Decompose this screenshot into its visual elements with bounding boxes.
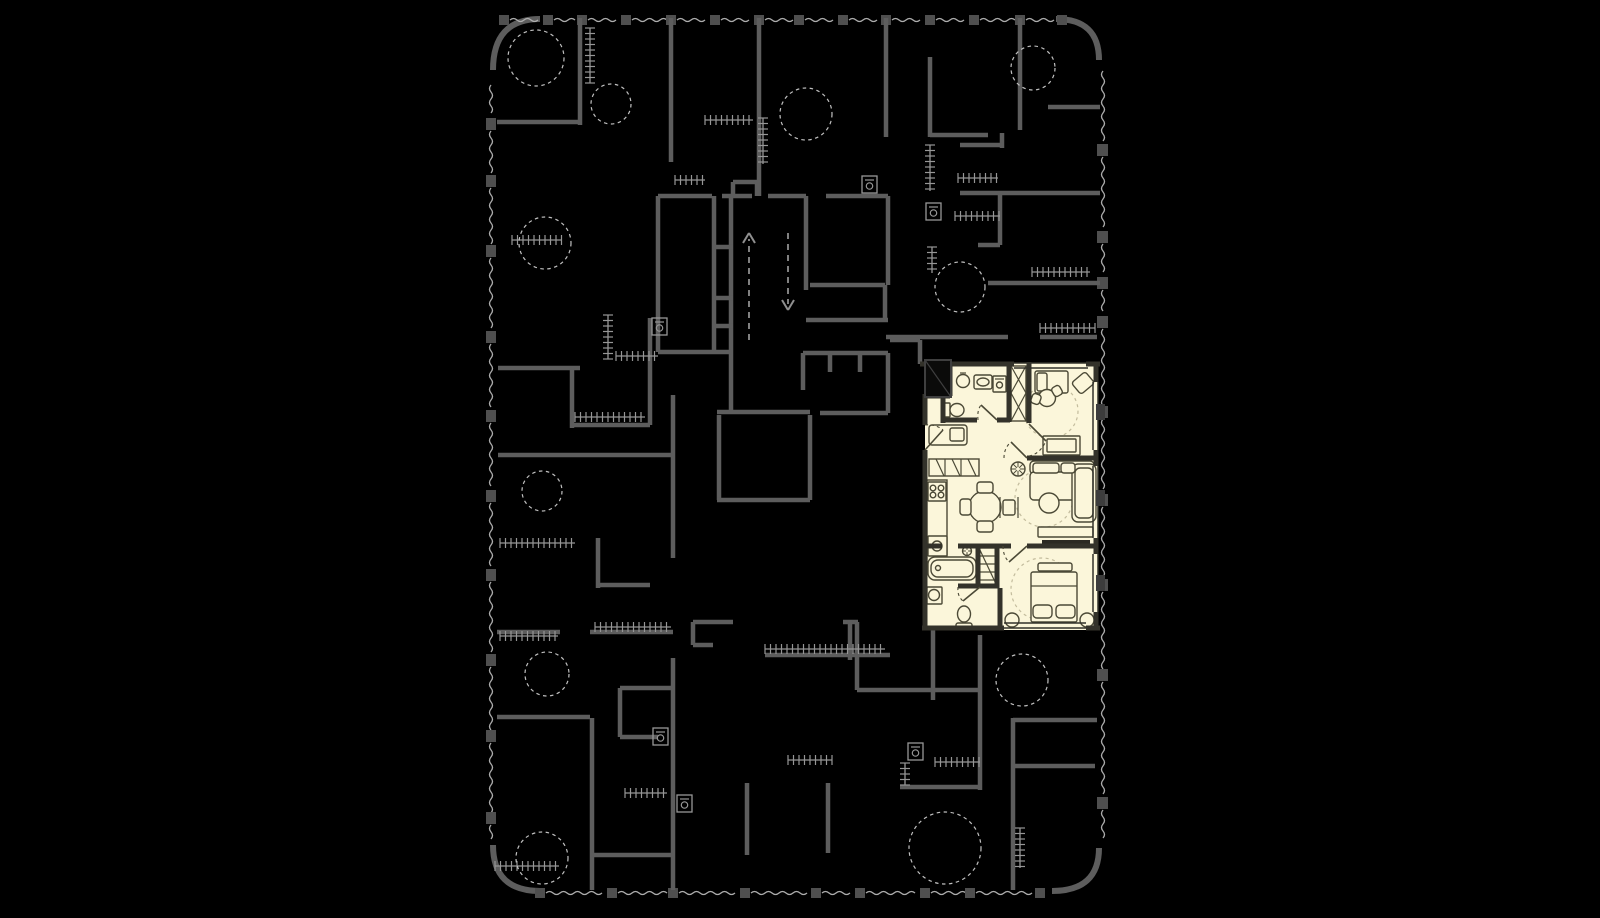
facade-window-left — [490, 503, 493, 566]
chair — [977, 482, 993, 493]
facade-window-bottom — [822, 892, 850, 895]
tv-console — [1038, 527, 1093, 537]
bed-bench — [1038, 563, 1072, 571]
radiator-symbol — [1032, 267, 1090, 277]
facade-window-left — [490, 825, 493, 839]
toilet-bowl — [950, 404, 964, 417]
facade-window-right — [1102, 71, 1105, 141]
radiator-symbol — [955, 211, 1000, 221]
facade-pilaster — [621, 15, 631, 25]
pillow — [1056, 605, 1075, 618]
radiator-symbol — [925, 145, 935, 191]
door-swing-arc — [996, 654, 1048, 706]
washing-machine-drum — [997, 382, 1003, 388]
selected-unit[interactable] — [920, 360, 1105, 630]
facade-window-top — [677, 19, 705, 22]
facade-pilaster — [499, 15, 509, 25]
facade-window-left — [490, 258, 493, 328]
facade-pilaster — [1097, 231, 1108, 243]
radiator-symbol — [1040, 323, 1095, 333]
pouf — [1039, 493, 1059, 513]
facade-window-top — [936, 19, 964, 22]
radiator-symbol — [765, 644, 885, 654]
arrow-head — [788, 300, 794, 310]
vanity-basin — [977, 378, 989, 386]
radiator-symbol — [1015, 828, 1025, 868]
wm-drum — [866, 183, 872, 189]
facade-pilaster — [838, 15, 848, 25]
nightstand — [1005, 613, 1019, 627]
chair — [977, 521, 993, 532]
wm-body — [862, 176, 877, 193]
facade-window-top — [765, 19, 793, 22]
facade-window-bottom — [931, 892, 966, 895]
burner — [938, 485, 944, 491]
facade-window-right — [1102, 244, 1105, 272]
facade-pilaster — [486, 569, 496, 581]
dresser-top — [1047, 439, 1076, 452]
facade-window-left — [490, 743, 493, 813]
door-swing-arc — [522, 471, 562, 511]
facade-window-right — [1102, 592, 1105, 669]
arrow-head — [749, 233, 755, 243]
facade-window-left — [490, 667, 493, 730]
radiator-symbol — [927, 247, 937, 273]
wm-drum — [681, 802, 687, 808]
wm-drum — [912, 750, 918, 756]
radiator-symbol — [958, 173, 998, 183]
facade-pilaster — [486, 654, 496, 666]
facade-pilaster — [740, 888, 750, 898]
hall-bench-seat — [950, 428, 964, 441]
facade-window-bottom — [751, 892, 807, 895]
facade-pilaster — [710, 15, 720, 25]
radiator-symbol — [705, 115, 753, 125]
facade-pilaster — [535, 888, 545, 898]
wm-body — [677, 795, 692, 812]
facade-window-left — [490, 423, 493, 486]
facade-pilaster — [486, 118, 496, 130]
drain — [936, 566, 941, 571]
door-swing-arc — [935, 262, 985, 312]
facade-window-bottom — [618, 892, 667, 895]
facade-pilaster — [965, 888, 975, 898]
pillow — [1037, 373, 1047, 391]
facade-window-right — [1102, 507, 1105, 577]
radiator-symbol — [675, 175, 705, 185]
radiator-symbol — [495, 861, 559, 871]
facade-pilaster — [794, 15, 804, 25]
facade-pilaster — [607, 888, 617, 898]
facade-window-top — [632, 19, 667, 22]
facade-pilaster — [811, 888, 821, 898]
facade-window-top — [554, 19, 575, 22]
washing-machine-icon — [862, 176, 877, 193]
door-swing-arc — [1011, 46, 1055, 90]
facade-pilaster — [1057, 15, 1067, 25]
washbasin — [957, 375, 970, 388]
facade-pilaster — [855, 888, 865, 898]
stairwell-arrows — [743, 233, 794, 340]
facade-pilaster — [486, 245, 496, 257]
washing-machine-icon — [677, 795, 692, 812]
radiator-symbol — [603, 315, 613, 359]
sofa-cushion — [1061, 463, 1075, 473]
tall-wardrobe — [1011, 366, 1026, 421]
facade-window-right — [1102, 682, 1105, 794]
nightstand — [1080, 613, 1094, 627]
facade-window-top — [805, 19, 833, 22]
facade-pilaster — [486, 490, 496, 502]
facade-window-right — [1102, 329, 1105, 406]
armchair — [1003, 500, 1015, 515]
facade-pilaster — [969, 15, 979, 25]
facade-window-bottom — [976, 892, 1032, 895]
door-swing-arc — [516, 832, 568, 884]
facade-corner — [1052, 848, 1099, 891]
facade-corner — [493, 19, 540, 70]
toilet2-bowl — [958, 606, 971, 622]
facade-pilaster — [486, 331, 496, 343]
radiator-symbol — [625, 788, 667, 798]
facade-pilaster — [486, 730, 496, 742]
facade-pilaster — [920, 888, 930, 898]
facade-window-top — [721, 19, 749, 22]
washing-machine-icon — [926, 203, 941, 220]
door-swing-arc — [909, 812, 981, 884]
facade-pilaster — [925, 15, 935, 25]
door-swing-arc — [525, 652, 569, 696]
wm-body — [926, 203, 941, 220]
wm-body — [908, 743, 923, 760]
facade-window-left — [490, 85, 493, 113]
facade-pilaster — [1097, 797, 1108, 809]
facade-window-left — [490, 344, 493, 407]
facade-window-left — [490, 131, 493, 173]
facade-pilaster — [1035, 888, 1045, 898]
floorplan-canvas — [0, 0, 1600, 918]
unit-facade-pilaster — [1096, 575, 1105, 591]
facade-pilaster — [543, 15, 553, 25]
facade-pilaster — [1097, 316, 1108, 328]
chaise-cushion — [1075, 468, 1093, 518]
facade-window-top — [1026, 19, 1054, 22]
door-swing-arc — [508, 30, 564, 86]
arrow-head — [743, 233, 749, 243]
radiator-symbol — [500, 538, 575, 548]
facade-window-left — [490, 582, 493, 652]
radiator-symbol — [585, 28, 595, 83]
facade-pilaster — [1097, 669, 1108, 681]
unit-facade-pilaster — [1096, 404, 1105, 420]
facade-pilaster — [486, 812, 496, 824]
facade-pilaster — [486, 410, 496, 422]
facade-window-right — [1102, 419, 1105, 489]
wm-drum — [657, 735, 663, 741]
sofa-cushion — [1033, 463, 1059, 473]
radiator-symbol — [900, 763, 910, 785]
facade-window-bottom — [679, 892, 735, 895]
facade-corner — [1056, 19, 1099, 60]
radiator-symbol — [788, 755, 832, 765]
facade-window-bottom — [866, 892, 915, 895]
washing-machine-icon — [908, 743, 923, 760]
unit-facade-pilaster — [1096, 490, 1105, 506]
door-swing-arc — [780, 88, 832, 140]
radiator-symbol — [935, 757, 980, 767]
door-swing-arc — [591, 84, 631, 124]
facade-window-right — [1102, 157, 1105, 227]
facade-window-top — [849, 19, 877, 22]
washbasin2 — [929, 590, 940, 601]
pillow — [1033, 605, 1052, 618]
facade-window-left — [490, 188, 493, 244]
floorplan-viewport — [0, 0, 1600, 918]
burner — [930, 492, 936, 498]
facade-window-top — [980, 19, 1015, 22]
facade-window-top — [588, 19, 616, 22]
burner — [930, 485, 936, 491]
stove — [928, 482, 946, 501]
facade-pilaster — [1097, 144, 1108, 156]
facade-window-top — [892, 19, 920, 22]
chair — [960, 499, 971, 515]
wm-drum — [930, 210, 936, 216]
facade-pilaster — [486, 175, 496, 187]
radiator-symbol — [575, 412, 645, 422]
facade-window-bottom — [546, 892, 602, 895]
burner — [938, 492, 944, 498]
dining-table — [969, 491, 1001, 523]
facade-window-right — [1102, 290, 1105, 311]
facade-window-right — [1102, 810, 1105, 838]
